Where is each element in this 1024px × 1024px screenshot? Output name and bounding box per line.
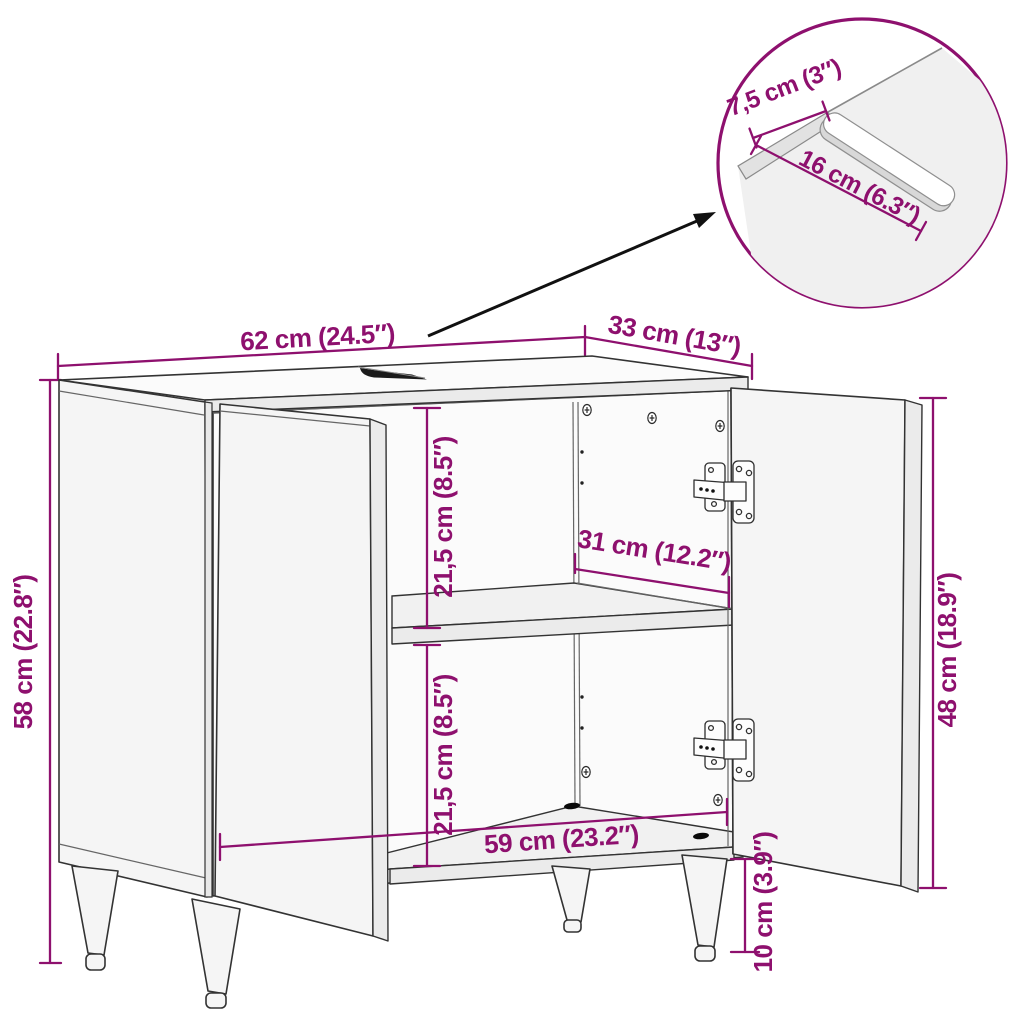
leg: [552, 866, 590, 932]
right-door: [731, 388, 922, 892]
arrowhead-icon: [693, 212, 716, 228]
dimension-diagram: 62 cm (24.5″) 33 cm (13″) 58 cm (22.8″): [0, 0, 1024, 1024]
dimension-door-height: 48 cm (18.9″): [920, 398, 962, 888]
dimension-upper-compartment-label: 21,5 cm (8.5″): [428, 436, 458, 598]
left-door: [215, 404, 388, 941]
detail-inset: 7,5 cm (3″) 16 cm (6.3″): [718, 19, 1015, 320]
dimension-total-height-label: 58 cm (22.8″): [8, 575, 38, 730]
callout-arrow: [428, 212, 716, 336]
dimension-leg-height-label: 10 cm (3.9″): [748, 832, 778, 973]
left-side-panel: [59, 380, 212, 897]
leg: [72, 866, 118, 970]
dimension-top-width-label: 62 cm (24.5″): [239, 318, 395, 357]
dimension-lower-compartment-label: 21,5 cm (8.5″): [428, 674, 458, 836]
front-corner-post: [205, 402, 212, 897]
dimension-total-height: 58 cm (22.8″): [8, 380, 61, 963]
diagram-canvas: 62 cm (24.5″) 33 cm (13″) 58 cm (22.8″): [0, 0, 1024, 1024]
leg: [682, 855, 727, 961]
leg: [192, 899, 240, 1008]
dimension-door-height-label: 48 cm (18.9″): [932, 573, 962, 728]
